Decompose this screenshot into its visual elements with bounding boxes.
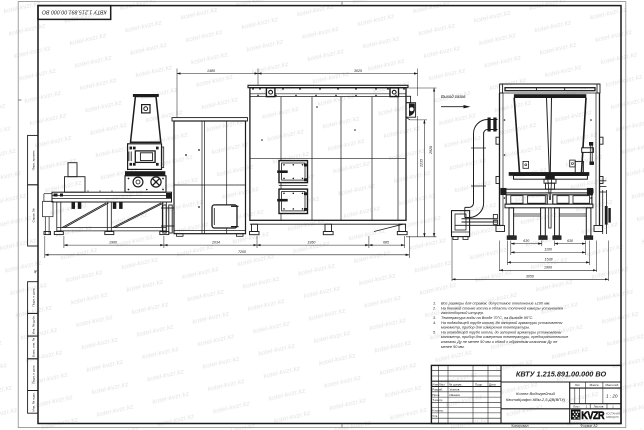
svg-text:Все размеры для справок, допус: Все размеры для справок, допустимое откл… xyxy=(441,302,550,306)
svg-text:Лит.: Лит. xyxy=(575,383,581,387)
svg-text:Утв.: Утв. xyxy=(432,414,438,418)
svg-text:Подп. и дата: Подп. и дата xyxy=(32,288,36,307)
svg-text:Иванов: Иванов xyxy=(450,393,461,397)
svg-text:КвотаКрафт-КВм-2,5-ДВ(ВПУ): КвотаКрафт-КВм-2,5-ДВ(ВПУ) xyxy=(506,397,566,402)
svg-text:2.: 2. xyxy=(432,306,436,310)
svg-text:Копировал: Копировал xyxy=(512,424,529,428)
svg-text:КОСТАНАЙ: КОСТАНАЙ xyxy=(606,411,620,415)
svg-text:3025: 3025 xyxy=(354,69,362,73)
svg-text:Дата: Дата xyxy=(489,382,496,386)
svg-text:Лист: Лист xyxy=(573,405,580,409)
svg-text:На подводящей трубе котла, до: На подводящей трубе котла, до запорной а… xyxy=(441,321,563,325)
svg-text:№ докум.: № докум. xyxy=(449,382,462,386)
svg-text:3.: 3. xyxy=(433,316,436,320)
svg-text:манометр, прибор для измерения: манометр, прибор для измерения температу… xyxy=(441,335,568,339)
svg-text:Масштаб: Масштаб xyxy=(605,383,618,387)
svg-text:КВТУ 1.215.891.00.000 ВО: КВТУ 1.215.891.00.000 ВО xyxy=(42,9,107,15)
svg-text:7200: 7200 xyxy=(238,250,246,254)
svg-text:1485: 1485 xyxy=(207,69,215,73)
svg-text:Котел Водогрейный: Котел Водогрейный xyxy=(516,391,555,396)
svg-text:4.: 4. xyxy=(433,321,436,325)
svg-text:2235: 2235 xyxy=(419,159,423,168)
svg-text:Пров.: Пров. xyxy=(432,393,440,397)
svg-text:Перв. примен.: Перв. примен. xyxy=(31,150,35,171)
svg-text:манометр, прибор для измерения: манометр, прибор для измерения температу… xyxy=(441,326,530,330)
svg-text:ЗАВОД РЗ: ЗАВОД РЗ xyxy=(606,415,619,419)
svg-text:Инв. № подл.: Инв. № подл. xyxy=(32,392,36,411)
svg-text:Т.контр.: Т.контр. xyxy=(432,398,443,402)
svg-text:Подп. и дата: Подп. и дата xyxy=(32,365,36,384)
svg-text:5.: 5. xyxy=(433,330,436,334)
svg-text:1950: 1950 xyxy=(307,240,315,244)
svg-text:Н.контр.: Н.контр. xyxy=(432,409,444,413)
svg-text:685: 685 xyxy=(383,240,389,244)
svg-text:Разраб.: Разраб. xyxy=(432,388,443,392)
svg-text:газоотборный штуцер.: газоотборный штуцер. xyxy=(441,311,484,315)
svg-text:4: 4 xyxy=(34,271,36,275)
svg-text:На отводящей трубе котла, до з: На отводящей трубе котла, до запорной ар… xyxy=(441,330,562,334)
svg-text:1538: 1538 xyxy=(545,258,553,262)
svg-text:KVZR: KVZR xyxy=(581,410,605,422)
svg-text:Выход газов: Выход газов xyxy=(441,94,466,99)
svg-text:1960: 1960 xyxy=(109,240,117,244)
svg-text:Взам. инв. №: Взам. инв. № xyxy=(32,337,36,357)
svg-text:630: 630 xyxy=(523,239,529,243)
svg-text:Инв. № дубл.: Инв. № дубл. xyxy=(31,315,35,334)
svg-text:Изм Лист: Изм Лист xyxy=(432,382,446,386)
svg-text:1.: 1. xyxy=(433,302,436,306)
svg-text:2034: 2034 xyxy=(211,240,220,244)
svg-text:1906: 1906 xyxy=(544,266,552,270)
svg-text:На боковой стенке котла в обла: На боковой стенке котла в области топочн… xyxy=(441,306,564,310)
svg-text:1 : 20: 1 : 20 xyxy=(606,394,618,399)
svg-text:клапаны Ду не менее 50 мм и об: клапаны Ду не менее 50 мм и обвод с обра… xyxy=(441,340,557,344)
svg-text:КВТУ 1.215.891.00.000 ВО: КВТУ 1.215.891.00.000 ВО xyxy=(516,370,607,379)
svg-text:Масса: Масса xyxy=(590,383,599,387)
svg-text:Подп.: Подп. xyxy=(475,382,483,386)
svg-text:1160: 1160 xyxy=(544,248,552,252)
svg-text:630: 630 xyxy=(567,239,573,243)
svg-text:Температура воды на Входе 70°С: Температура воды на Входе 70°С, на Выход… xyxy=(441,316,533,320)
svg-text:Формат А2: Формат А2 xyxy=(580,424,597,428)
svg-text:менее 50 мм.: менее 50 мм. xyxy=(441,345,465,349)
svg-text:2920: 2920 xyxy=(429,146,433,155)
svg-text:Справ. №: Справ. № xyxy=(32,208,36,223)
svg-text:Усенов: Усенов xyxy=(450,388,460,392)
svg-text:3050: 3050 xyxy=(526,275,534,279)
svg-text:Листов: Листов xyxy=(594,405,604,409)
